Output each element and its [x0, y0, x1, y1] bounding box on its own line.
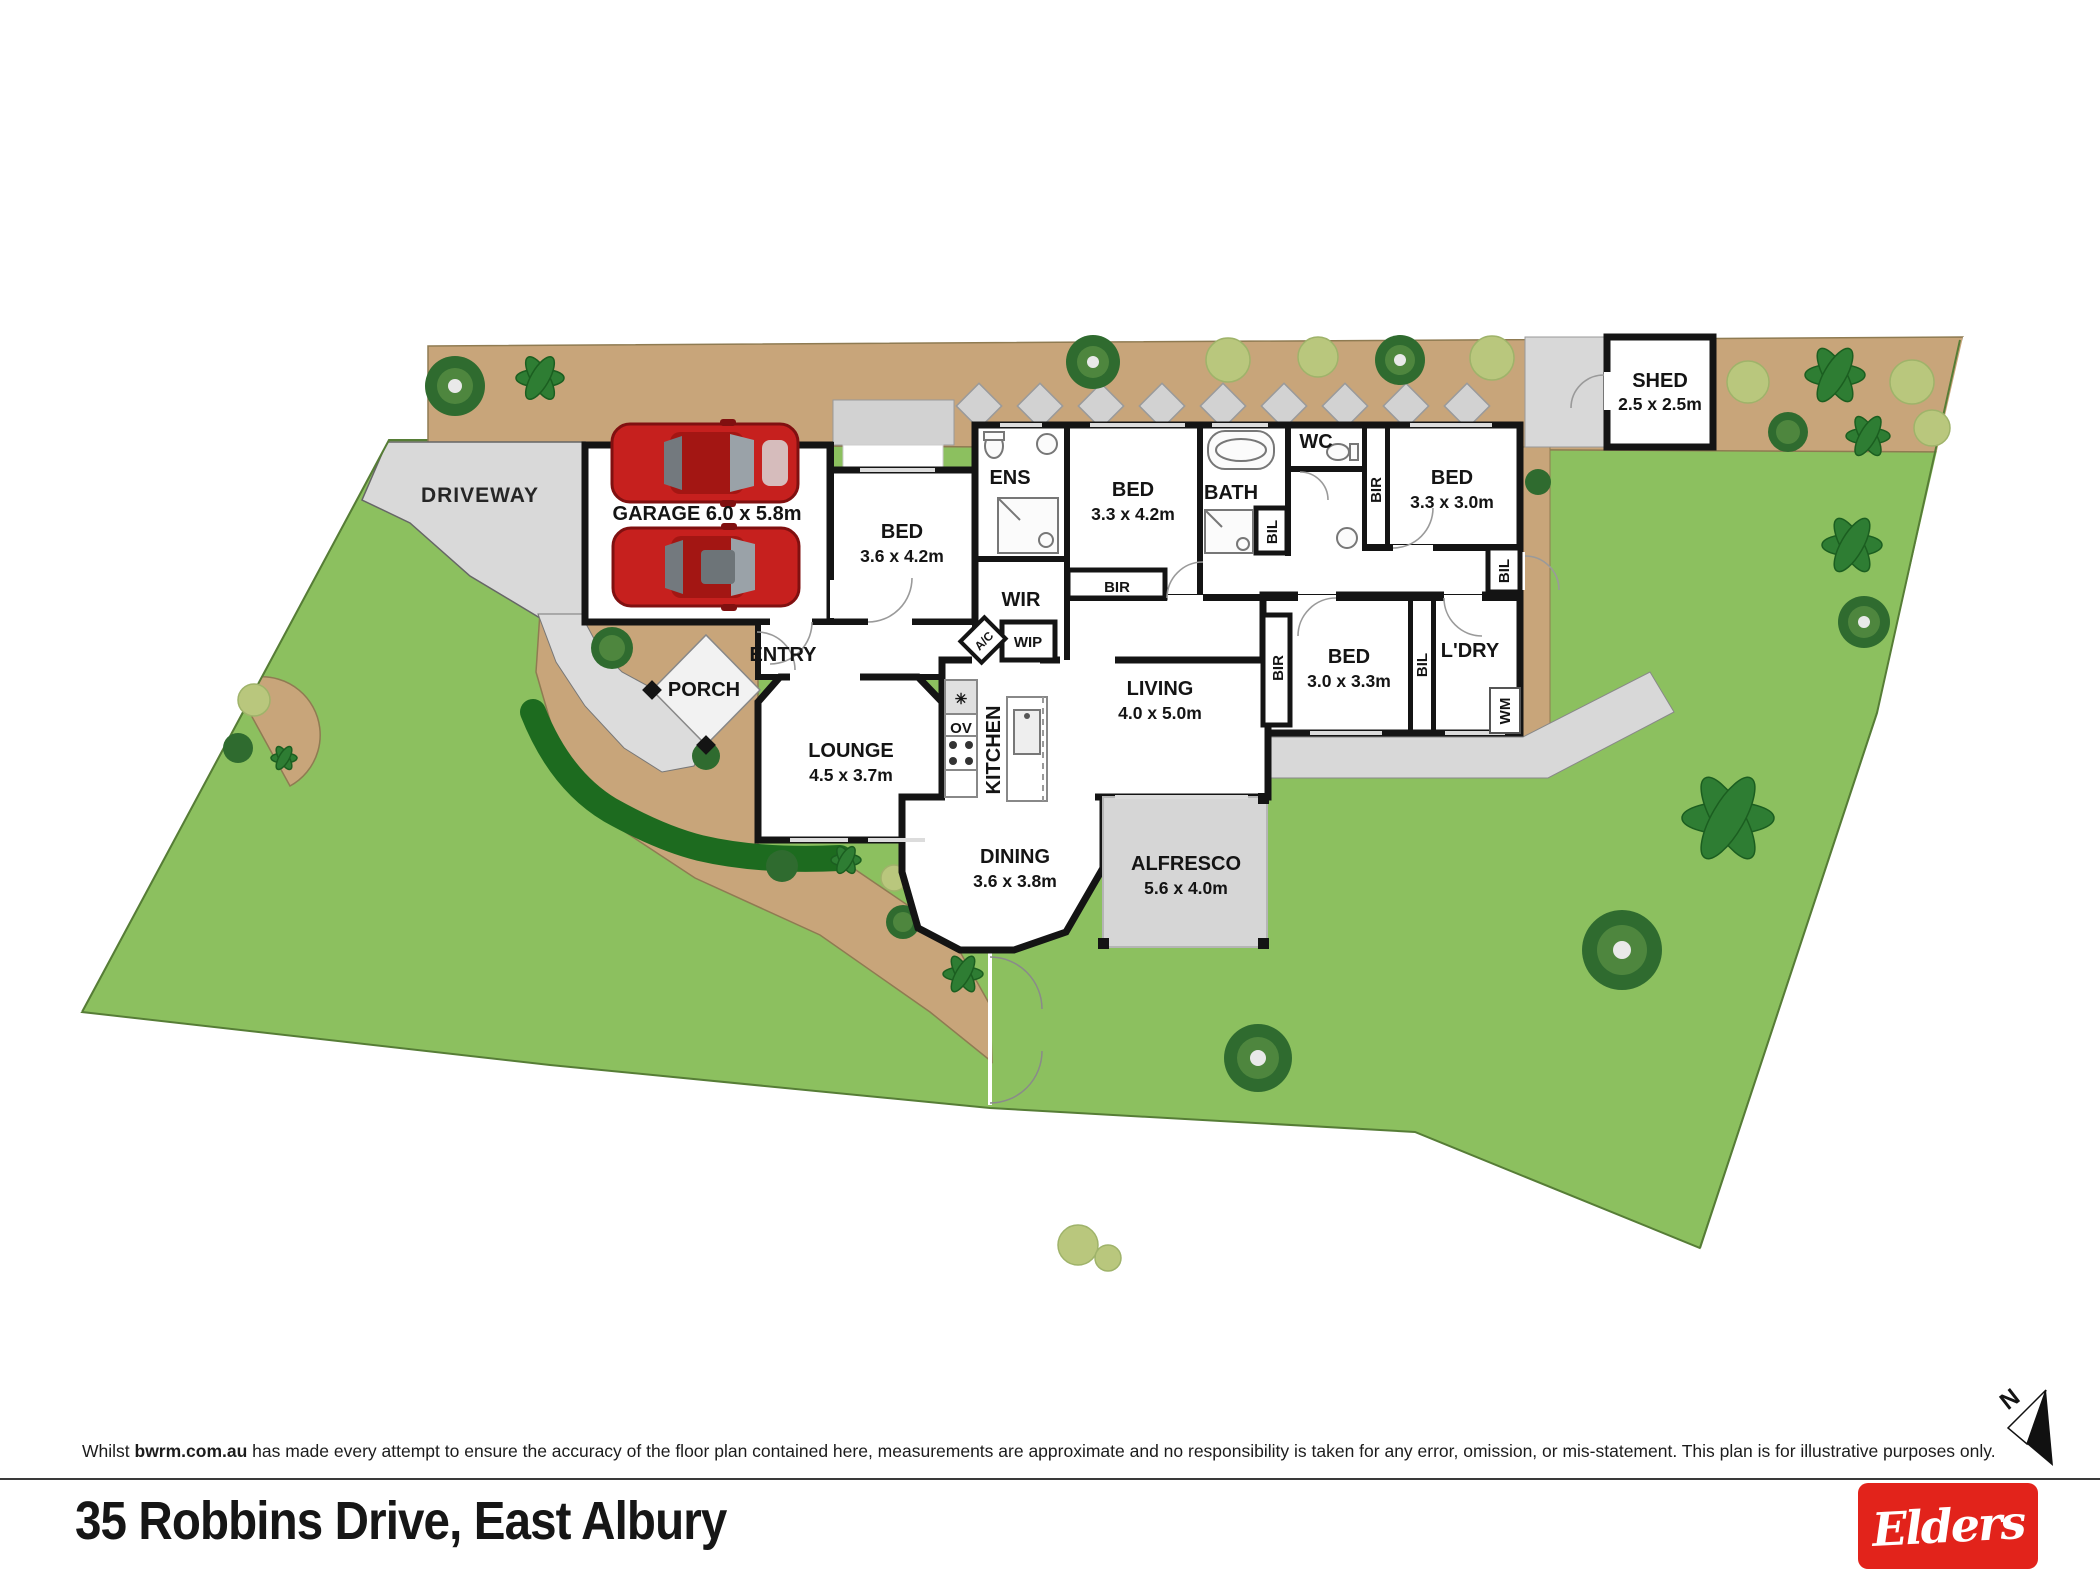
label-dining-name: DINING — [980, 846, 1050, 868]
label-ldry: L'DRY — [1441, 640, 1500, 662]
label-driveway: DRIVEWAY — [421, 484, 539, 507]
east-wing — [1263, 595, 1520, 733]
basin-icon — [1037, 434, 1057, 454]
entry-pad — [833, 400, 954, 445]
label-bed3-dims: 3.3 x 3.0m — [1410, 492, 1494, 512]
label-bir-bed4: BIR — [1270, 655, 1287, 681]
label-bil-hall: BIL — [1496, 559, 1513, 583]
north-label: N — [1995, 1384, 2025, 1416]
label-bed1-dims: 3.6 x 4.2m — [860, 546, 944, 566]
label-living-name: LIVING — [1127, 678, 1194, 700]
entry-step — [843, 445, 943, 470]
disclaimer-prefix: Whilst — [82, 1441, 135, 1461]
elders-logo-text: Elders — [1871, 1495, 2026, 1557]
label-wip: WIP — [1014, 634, 1042, 651]
label-bath: BATH — [1204, 482, 1258, 504]
label-bed1-name: BED — [881, 521, 923, 543]
label-lounge-dims: 4.5 x 3.7m — [809, 765, 893, 785]
shed-pad — [1525, 337, 1607, 447]
label-bir-bed3: BIR — [1368, 477, 1385, 503]
label-wir: WIR — [1002, 589, 1041, 611]
basin-icon — [1337, 528, 1357, 548]
stove-icon — [945, 736, 977, 770]
label-bed3-name: BED — [1431, 467, 1473, 489]
disclaimer: Whilst bwrm.com.au has made every attemp… — [82, 1441, 1982, 1462]
label-dining-dims: 3.6 x 3.8m — [973, 871, 1057, 891]
divider — [0, 1478, 2100, 1480]
label-microwave: ✳ — [955, 691, 968, 708]
label-bed4-name: BED — [1328, 646, 1370, 668]
room-shed — [1607, 337, 1713, 447]
label-bed4-dims: 3.0 x 3.3m — [1307, 671, 1391, 691]
label-shed-name: SHED — [1632, 370, 1688, 392]
label-kitchen: KITCHEN — [983, 706, 1005, 795]
floor-plan-page: DRIVEWAY GARAGE 6.0 x 5.8m PORCH ENTRY B… — [0, 0, 2100, 1575]
label-ov: OV — [950, 720, 972, 737]
label-bed2-dims: 3.3 x 4.2m — [1091, 504, 1175, 524]
label-ens: ENS — [989, 467, 1030, 489]
label-wc: WC — [1299, 431, 1332, 453]
label-alfresco-dims: 5.6 x 4.0m — [1144, 878, 1228, 898]
label-bed2-name: BED — [1112, 479, 1154, 501]
label-bil-ldry: BIL — [1414, 653, 1431, 677]
label-shed-dims: 2.5 x 2.5m — [1618, 394, 1702, 414]
elders-logo: Elders — [1858, 1483, 2038, 1569]
disclaimer-brand: bwrm.com.au — [135, 1441, 248, 1461]
label-bir-bed2: BIR — [1104, 579, 1130, 596]
site-plan: DRIVEWAY GARAGE 6.0 x 5.8m PORCH ENTRY B… — [0, 0, 2100, 1575]
north-arrow-icon: N — [1995, 1384, 2053, 1466]
label-living-dims: 4.0 x 5.0m — [1118, 703, 1202, 723]
disclaimer-suffix: has made every attempt to ensure the acc… — [247, 1441, 1995, 1461]
label-entry: ENTRY — [749, 644, 817, 666]
page-title: 35 Robbins Drive, East Albury — [75, 1490, 726, 1552]
label-lounge-name: LOUNGE — [808, 740, 894, 762]
label-bil-bath: BIL — [1264, 520, 1281, 544]
label-alfresco-name: ALFRESCO — [1131, 853, 1241, 875]
label-porch: PORCH — [668, 679, 740, 701]
label-garage: GARAGE 6.0 x 5.8m — [613, 503, 802, 525]
label-wm: WM — [1497, 698, 1514, 725]
